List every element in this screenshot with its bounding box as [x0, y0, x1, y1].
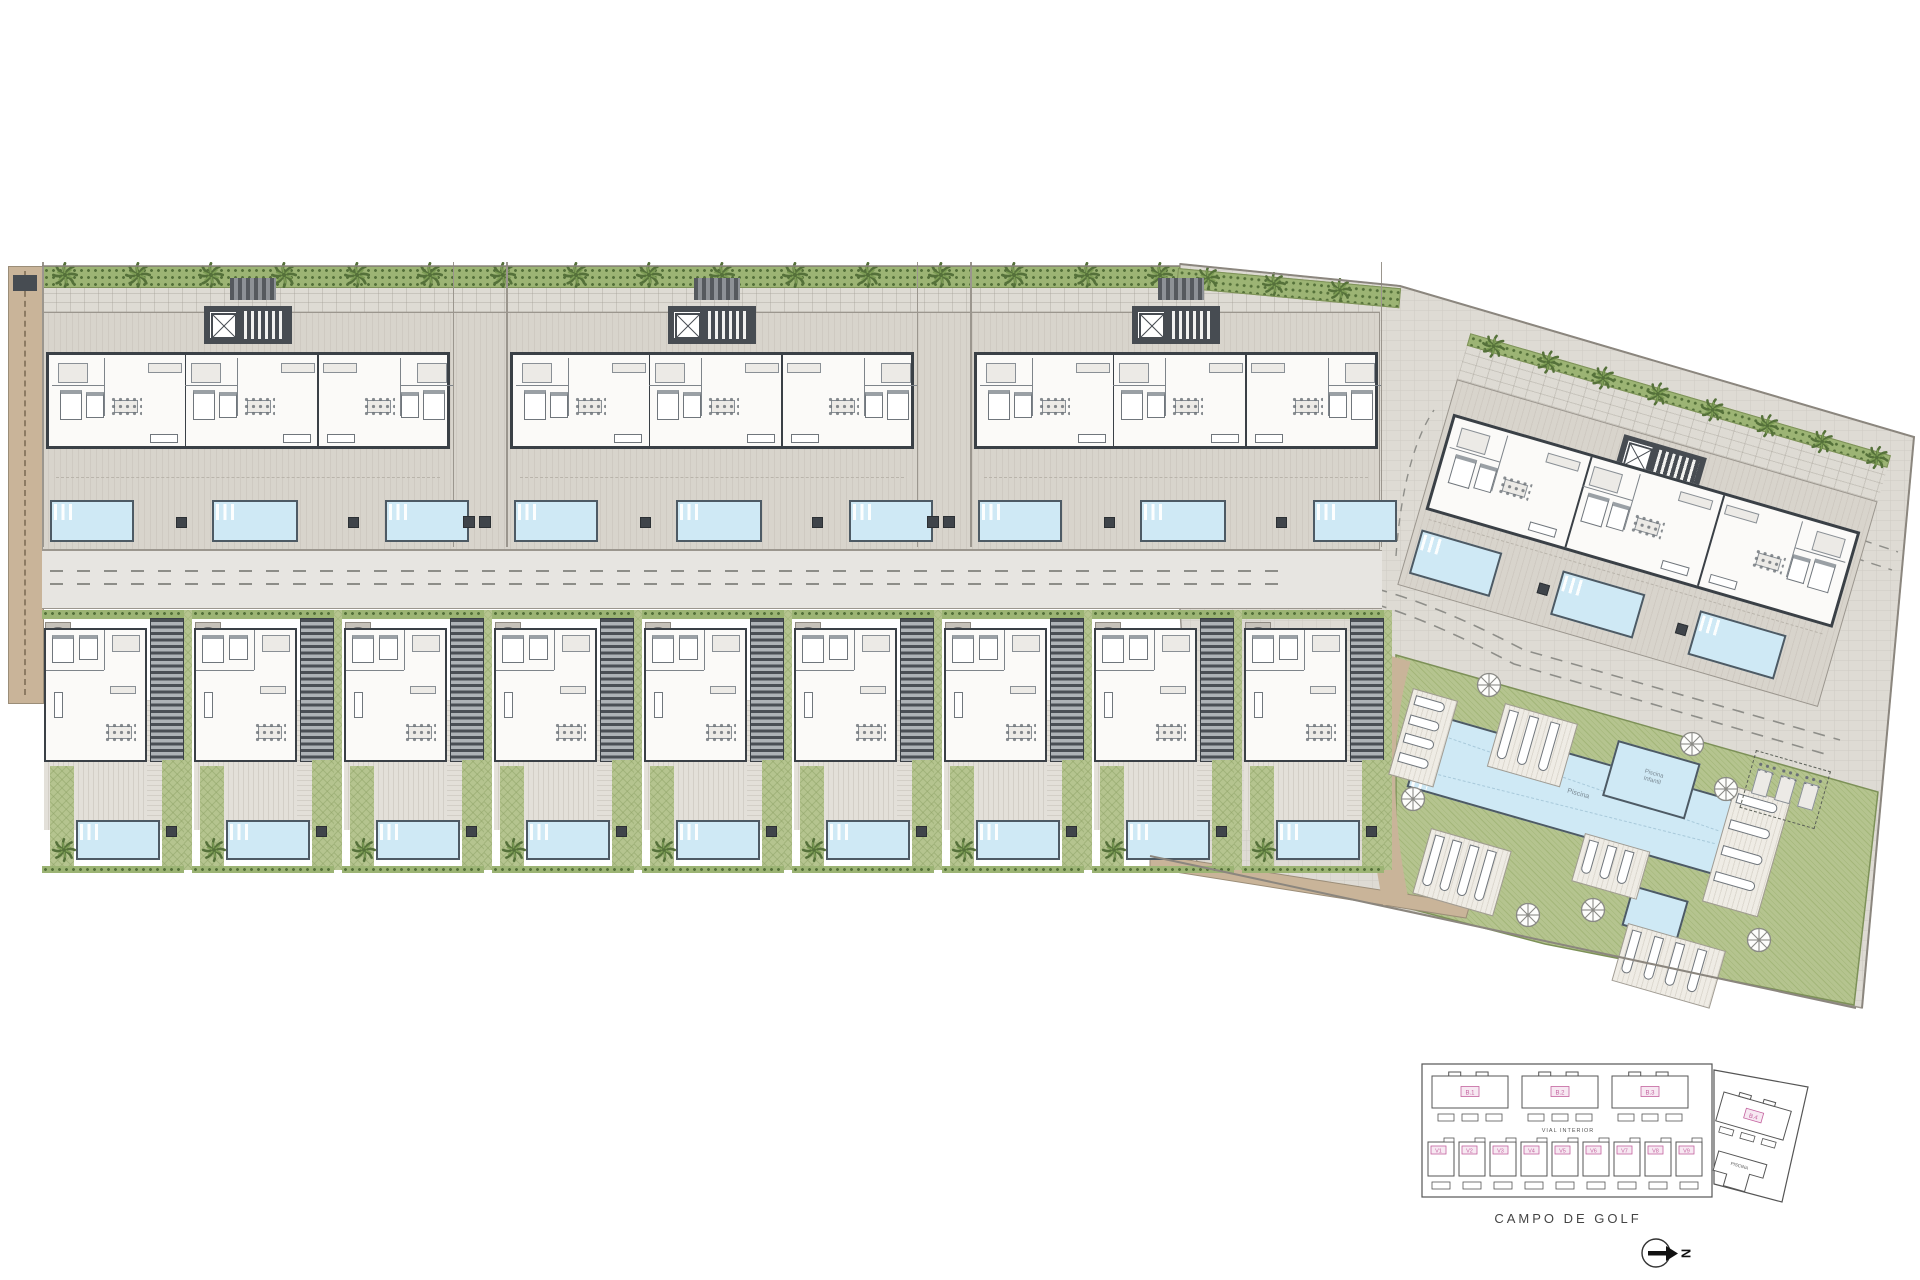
svg-text:V6: V6	[1590, 1149, 1597, 1155]
site-plan: PiscinaPiscinaInfantil B.1 B.2 B.3VIAL I…	[0, 0, 1920, 1280]
svg-text:B.2: B.2	[1555, 1091, 1565, 1097]
keyplan-building: B.1	[1432, 1072, 1508, 1108]
svg-text:B.3: B.3	[1645, 1091, 1655, 1097]
north-arrow-icon: N	[1642, 1239, 1694, 1267]
keyplan-road-label: VIAL INTERIOR	[1542, 1128, 1595, 1134]
golf-course-label: CAMPO DE GOLF	[1494, 1211, 1641, 1226]
key-plan: B.1 B.2 B.3VIAL INTERIOR V1 V2 V3 V4 V5 …	[1408, 1050, 1878, 1280]
property-line	[1150, 856, 1856, 1008]
svg-text:V4: V4	[1528, 1149, 1535, 1155]
property-line	[1180, 264, 1914, 1008]
svg-text:V1: V1	[1435, 1149, 1442, 1155]
svg-text:V5: V5	[1559, 1149, 1566, 1155]
keyplan-building: B.3	[1612, 1072, 1688, 1108]
keyplan-building: B.2	[1522, 1072, 1598, 1108]
svg-text:V2: V2	[1466, 1149, 1473, 1155]
svg-text:V9: V9	[1683, 1149, 1690, 1155]
svg-text:V8: V8	[1652, 1149, 1659, 1155]
svg-text:V3: V3	[1497, 1149, 1504, 1155]
north-label: N	[1679, 1249, 1694, 1258]
svg-text:B.1: B.1	[1465, 1091, 1475, 1097]
svg-text:V7: V7	[1621, 1149, 1628, 1155]
